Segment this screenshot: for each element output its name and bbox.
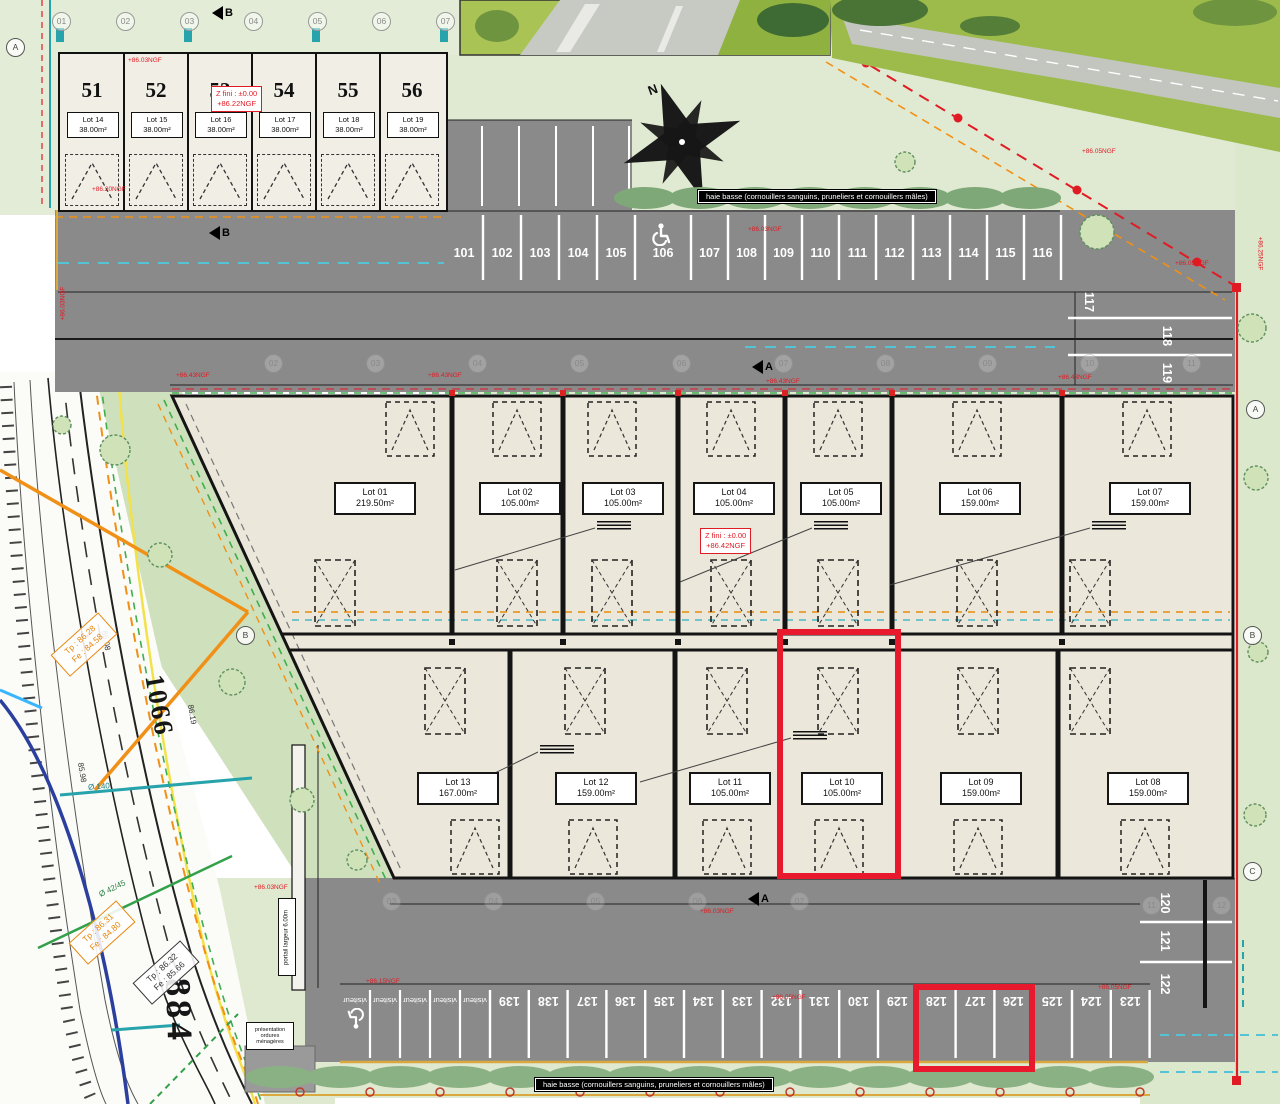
unit-door (65, 154, 119, 206)
level-note-main: Z fini : ±0.00 +86.42NGF (700, 528, 751, 554)
unit-lot-name: Lot 16 (196, 115, 246, 125)
section-marker-b-mid: B (209, 226, 230, 240)
axis-bubble-bottom-03: 03 (382, 892, 401, 911)
parking-spot-115: 115 (987, 246, 1024, 260)
micro-note (1092, 521, 1126, 530)
unit-lot-area: 38.00m² (324, 125, 374, 135)
lot-label-lot-13: Lot 13167.00m² (417, 772, 499, 805)
lot-area: 105.00m² (807, 498, 875, 509)
parking-spot-123: 123 (1111, 994, 1150, 1008)
unit-cell-52: 52Lot 1538.00m² (124, 54, 188, 210)
unit-number: 52 (124, 78, 188, 103)
micro-note (540, 745, 574, 754)
unit-lot-name: Lot 15 (132, 115, 182, 125)
grid-bubble-04: 04 (244, 12, 263, 31)
lot-label-lot-03: Lot 03105.00m² (582, 482, 664, 515)
unit-cell-55: 55Lot 1838.00m² (316, 54, 380, 210)
lot-name: Lot 02 (486, 487, 554, 498)
elevation-note: +86.15NGF (366, 978, 400, 985)
section-marker-b-top: B (212, 6, 233, 20)
parking-spot-113: 113 (913, 246, 950, 260)
elevation-note: +86.25NGF (1256, 237, 1263, 271)
lot-label-lot-02: Lot 02105.00m² (479, 482, 561, 515)
parking-spot-107: 107 (691, 246, 728, 260)
lot-area: 159.00m² (946, 498, 1014, 509)
parking-spot-106: 106 (635, 246, 691, 260)
parking-spot-110: 110 (802, 246, 839, 260)
hedge-banner-bottom: haie basse (cornouillers sanguins, prune… (535, 1078, 773, 1091)
grid-bubble-05: 05 (308, 12, 327, 31)
parking-spot-135: 135 (645, 994, 684, 1008)
elevation-note: +86.05NGF (1098, 984, 1132, 991)
parking-spot-130: 130 (839, 994, 878, 1008)
axis-bubble-bottom-11: 11 (1142, 896, 1161, 915)
lot-label-lot-12: Lot 12159.00m² (555, 772, 637, 805)
section-marker-a-top: A (752, 360, 773, 374)
unit-lot-label: Lot 1438.00m² (67, 112, 119, 138)
lot-area: 105.00m² (589, 498, 657, 509)
parking-spot-118: 118 (1160, 319, 1174, 353)
elevation-note: +86.03NGF (59, 287, 66, 321)
unit-door (385, 154, 439, 206)
unit-lot-label: Lot 1838.00m² (323, 112, 375, 138)
lot-area: 159.00m² (1114, 788, 1182, 799)
axis-bubble-04: 04 (468, 354, 487, 373)
parking-spot-visiteur: visiteur (370, 996, 400, 1005)
level-note-top-line2: +86.22NGF (216, 99, 257, 109)
unit-lot-name: Lot 14 (68, 115, 118, 125)
unit-lot-name: Lot 19 (388, 115, 438, 125)
elevation-note: +86.05NGF (1082, 148, 1116, 155)
level-note-main-line1: Z fini : ±0.00 (705, 531, 746, 541)
lot-name: Lot 09 (947, 777, 1015, 788)
grid-letter-b-left: B (236, 626, 255, 645)
axis-bubble-bottom-04: 04 (484, 892, 503, 911)
axis-bubble-bottom-05: 05 (586, 892, 605, 911)
pipe-label-140: Ø 140 (88, 781, 110, 791)
lot-area: 159.00m² (1116, 498, 1184, 509)
unit-lot-area: 38.00m² (196, 125, 246, 135)
grid-bubble-03: 03 (180, 12, 199, 31)
section-marker-label: B (222, 227, 230, 239)
unit-lot-label: Lot 1738.00m² (259, 112, 311, 138)
waste-presentation-label: présentation ordures ménagères (246, 1022, 294, 1050)
parking-spot-114: 114 (950, 246, 987, 260)
elevation-note: +86.05NGF (772, 994, 806, 1001)
axis-bubble-11: 11 (1182, 354, 1201, 373)
parking-spot-105: 105 (597, 246, 635, 260)
micro-note (814, 521, 848, 530)
lot-name: Lot 04 (700, 487, 768, 498)
hedge-banner-top: haie basse (cornouillers sanguins, prune… (698, 190, 936, 203)
lot-label-lot-07: Lot 07159.00m² (1109, 482, 1191, 515)
elevation-note: +86.43NGF (1058, 374, 1092, 381)
elevation-note: +86.03NGF (128, 57, 162, 64)
parking-spot-visiteur: visiteur (400, 996, 430, 1005)
unit-cell-56: 56Lot 1938.00m² (380, 54, 444, 210)
unit-number: 55 (316, 78, 380, 103)
unit-lot-label: Lot 1638.00m² (195, 112, 247, 138)
parking-spot-116: 116 (1024, 246, 1061, 260)
parking-spot-visiteur: visiteur (340, 996, 370, 1005)
unit-lot-area: 38.00m² (388, 125, 438, 135)
parking-spot-131: 131 (800, 994, 839, 1008)
unit-lot-area: 38.00m² (68, 125, 118, 135)
grid-bubble-02: 02 (116, 12, 135, 31)
unit-number: 56 (380, 78, 444, 103)
parking-spot-122: 122 (1158, 967, 1172, 1001)
parking-spot-visiteur: visiteur (430, 996, 460, 1005)
lot-label-lot-09: Lot 09159.00m² (940, 772, 1022, 805)
section-arrow-icon (212, 6, 223, 20)
unit-door (321, 154, 375, 206)
parking-spot-133: 133 (723, 994, 762, 1008)
unit-lot-label: Lot 1538.00m² (131, 112, 183, 138)
lot-area: 167.00m² (424, 788, 492, 799)
unit-cell-54: 54Lot 1738.00m² (252, 54, 316, 210)
lot-area: 159.00m² (562, 788, 630, 799)
parking-spot-109: 109 (765, 246, 802, 260)
unit-lot-name: Lot 17 (260, 115, 310, 125)
elevation-note: +86.03NGF (748, 226, 782, 233)
lot-area: 105.00m² (486, 498, 554, 509)
lot-area: 159.00m² (947, 788, 1015, 799)
elevation-note: +86.03NGF (254, 884, 288, 891)
parking-spot-111: 111 (839, 246, 876, 260)
axis-bubble-08: 08 (876, 354, 895, 373)
parking-spot-104: 104 (559, 246, 597, 260)
parking-spot-112: 112 (876, 246, 913, 260)
level-note-top-line1: Z fini : ±0.00 (216, 89, 257, 99)
lot-label-lot-04: Lot 04105.00m² (693, 482, 775, 515)
parking-spot-134: 134 (684, 994, 723, 1008)
lot-name: Lot 07 (1116, 487, 1184, 498)
parking-spot-125: 125 (1033, 994, 1072, 1008)
parking-spot-139: 139 (490, 994, 529, 1008)
lot-name: Lot 03 (589, 487, 657, 498)
unit-lot-area: 38.00m² (132, 125, 182, 135)
grid-letter-b-right: B (1243, 626, 1262, 645)
axis-bubble-10: 10 (1080, 354, 1099, 373)
parking-spot-119: 119 (1160, 356, 1174, 390)
grid-letter-a-left: A (6, 38, 25, 57)
grid-bubble-06: 06 (372, 12, 391, 31)
elevation-note: +86.43NGF (766, 378, 800, 385)
axis-bubble-05: 05 (570, 354, 589, 373)
highlight-lot-10 (777, 629, 901, 879)
parking-spot-121: 121 (1158, 924, 1172, 958)
unit-lot-name: Lot 18 (324, 115, 374, 125)
parking-spot-101: 101 (445, 246, 483, 260)
parking-spot-visiteur: visiteur (460, 996, 490, 1005)
elevation-note: +86.03NGF (700, 908, 734, 915)
elevation-note: +86.43NGF (428, 372, 462, 379)
micro-note (597, 521, 631, 530)
section-marker-label: A (765, 361, 773, 373)
photo-strip-1 (460, 0, 830, 55)
parking-spot-103: 103 (521, 246, 559, 260)
accessible-parking-icon (650, 222, 672, 246)
accessible-parking-icon-flipped (346, 1008, 366, 1030)
lot-area: 105.00m² (696, 788, 764, 799)
lot-label-lot-11: Lot 11105.00m² (689, 772, 771, 805)
parking-spot-138: 138 (529, 994, 568, 1008)
unit-lot-label: Lot 1938.00m² (387, 112, 439, 138)
parking-spot-136: 136 (606, 994, 645, 1008)
lot-label-lot-05: Lot 05105.00m² (800, 482, 882, 515)
parking-spot-137: 137 (568, 994, 607, 1008)
lot-label-lot-01: Lot 01219.50m² (334, 482, 416, 515)
lot-name: Lot 06 (946, 487, 1014, 498)
section-arrow-icon (748, 892, 759, 906)
axis-bubble-09: 09 (978, 354, 997, 373)
parking-spot-117: 117 (1082, 285, 1096, 319)
grid-letter-c-right: C (1243, 862, 1262, 881)
axis-bubble-bottom-07: 07 (790, 892, 809, 911)
lot-name: Lot 12 (562, 777, 630, 788)
grid-bubble-07: 07 (436, 12, 455, 31)
level-note-main-line2: +86.42NGF (705, 541, 746, 551)
unit-door (129, 154, 183, 206)
parking-spot-129: 129 (878, 994, 917, 1008)
lot-label-lot-06: Lot 06159.00m² (939, 482, 1021, 515)
grid-bubble-01: 01 (52, 12, 71, 31)
highlight-parking-126-128 (913, 984, 1035, 1072)
unit-door (193, 154, 247, 206)
unit-door (257, 154, 311, 206)
axis-bubble-06: 06 (672, 354, 691, 373)
lot-label-lot-08: Lot 08159.00m² (1107, 772, 1189, 805)
elevation-note: +86.05NGF (1175, 260, 1209, 267)
lot-name: Lot 13 (424, 777, 492, 788)
lot-name: Lot 11 (696, 777, 764, 788)
level-note-top: Z fini : ±0.00 +86.22NGF (211, 86, 262, 112)
unit-cell-53: 53Lot 1638.00m² (188, 54, 252, 210)
lot-area: 105.00m² (700, 498, 768, 509)
lot-name: Lot 08 (1114, 777, 1182, 788)
unit-number: 51 (60, 78, 124, 103)
elevation-note: +86.20NGF (92, 186, 126, 193)
axis-bubble-03: 03 (366, 354, 385, 373)
lot-name: Lot 01 (341, 487, 409, 498)
parking-spot-102: 102 (483, 246, 521, 260)
lot-name: Lot 05 (807, 487, 875, 498)
axis-bubble-bottom-12: 12 (1212, 896, 1231, 915)
gate-width-label: portail largeur 6.00m (278, 898, 296, 976)
axis-bubble-02: 02 (264, 354, 283, 373)
section-marker-a-bottom: A (748, 892, 769, 906)
axis-bubble-07: 07 (774, 354, 793, 373)
parking-spot-124: 124 (1072, 994, 1111, 1008)
section-marker-label: B (225, 7, 233, 19)
section-arrow-icon (209, 226, 220, 240)
unit-lot-area: 38.00m² (260, 125, 310, 135)
elevation-note: +86.43NGF (176, 372, 210, 379)
parking-spot-108: 108 (728, 246, 765, 260)
grid-letter-a-right: A (1246, 400, 1265, 419)
lot-area: 219.50m² (341, 498, 409, 509)
section-arrow-icon (752, 360, 763, 374)
section-marker-label: A (761, 893, 769, 905)
site-plan: Z fini : ±0.00 +86.22NGF Z fini : ±0.00 … (0, 0, 1280, 1104)
